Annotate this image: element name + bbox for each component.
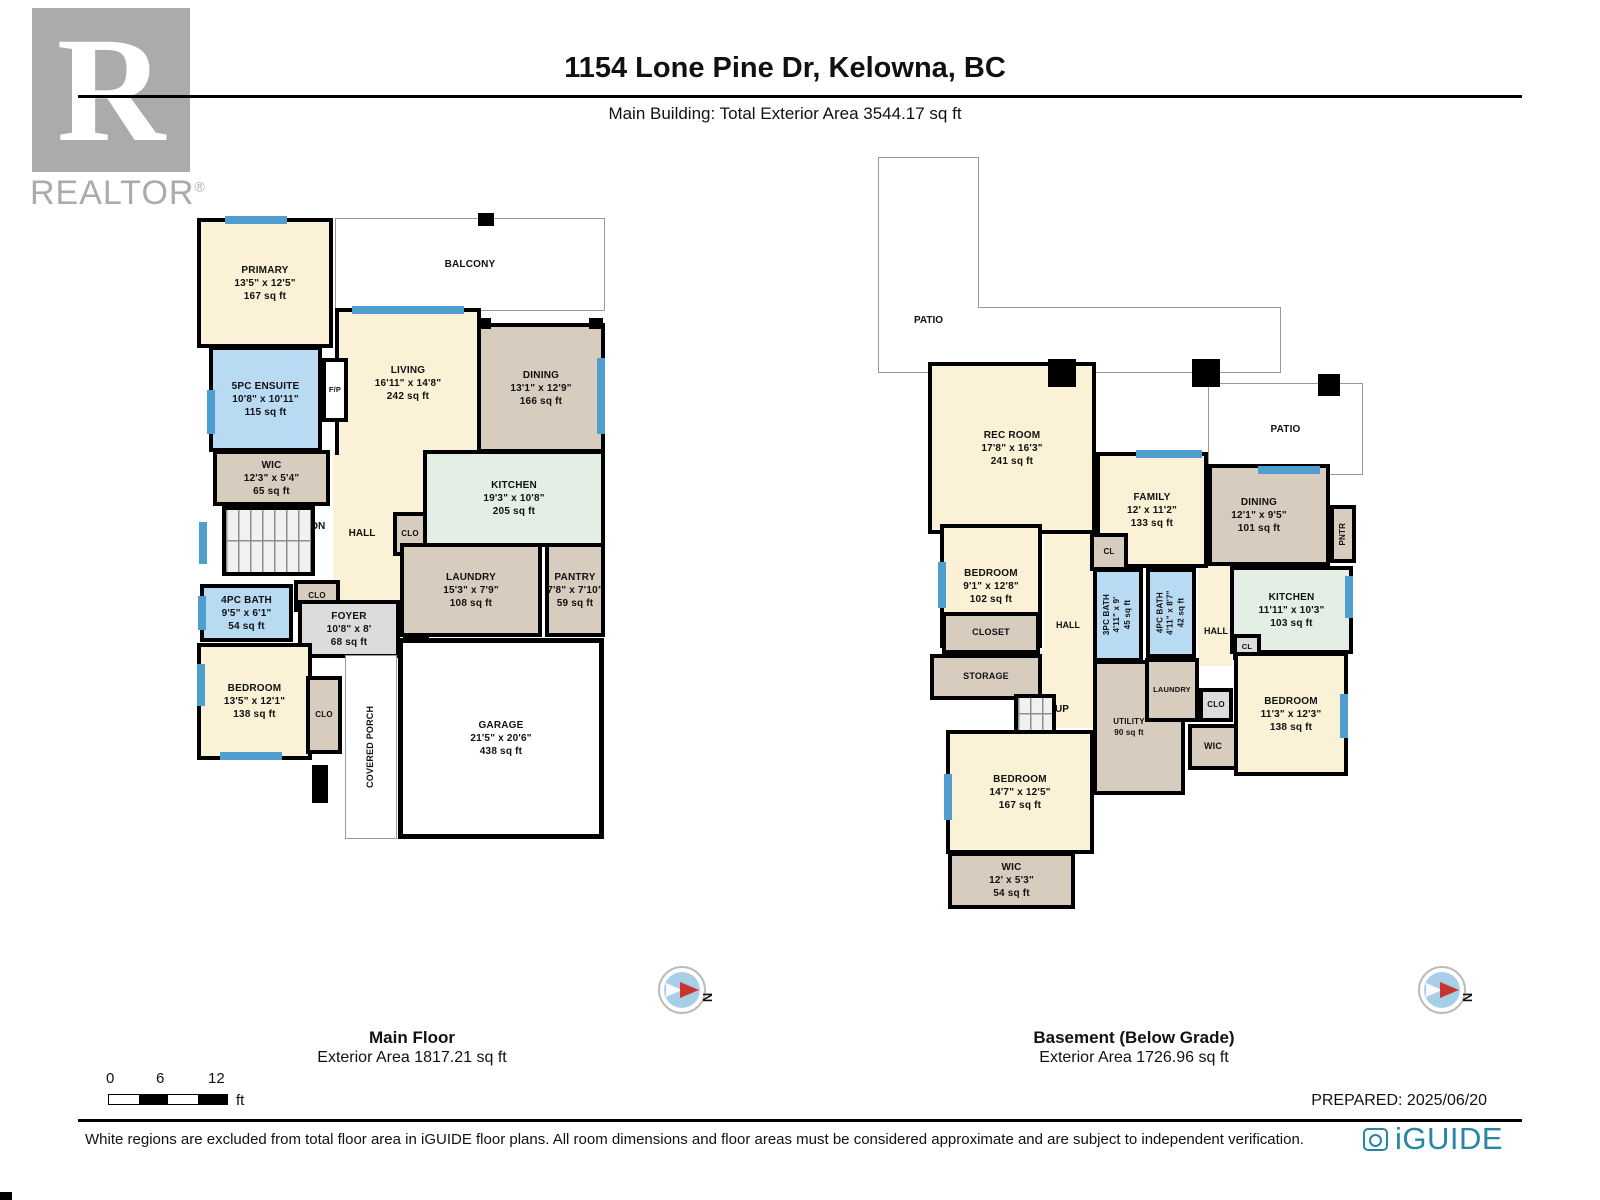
room-label: PANTRY7'8" x 7'10"59 sq ft	[547, 571, 603, 610]
scale-tick: 6	[156, 1070, 164, 1087]
iguide-camera-icon	[1363, 1128, 1388, 1151]
window-strip	[938, 562, 946, 608]
room-label: F/P	[329, 385, 341, 395]
room-label: LAUNDRY15'3" x 7'9"108 sq ft	[443, 571, 499, 610]
compass-needle-icon	[1440, 982, 1459, 998]
window-strip	[352, 306, 464, 314]
wall-post	[1192, 359, 1220, 387]
room-pantry: PANTRY7'8" x 7'10"59 sq ft	[545, 543, 605, 637]
window-strip	[198, 596, 206, 630]
footer-divider	[78, 1119, 1522, 1122]
room-label: DINING12'1" x 9'5"101 sq ft	[1231, 496, 1307, 535]
window-strip	[197, 664, 205, 706]
room-bedroom-3-basement: BEDROOM14'7" x 12'5"167 sq ft	[946, 730, 1094, 854]
room-label: BEDROOM14'7" x 12'5"167 sq ft	[989, 773, 1050, 812]
room-label: CLO	[1207, 700, 1225, 710]
floor-area: Exterior Area 1726.96 sq ft	[964, 1049, 1304, 1067]
room-label: FOYER10'8" x 8'68 sq ft	[327, 610, 372, 649]
floor-title: Main Floor	[242, 1028, 582, 1048]
room-label: WIC	[1204, 741, 1222, 753]
page-corner-mark	[0, 1192, 12, 1200]
page-title: 1154 Lone Pine Dr, Kelowna, BC	[0, 52, 1570, 85]
registered-mark: ®	[194, 179, 205, 195]
scale-tick: 12	[208, 1070, 225, 1087]
room-label: PATIO	[879, 315, 978, 326]
room-label: STORAGE	[963, 671, 1009, 683]
room-rec: REC ROOM17'8" x 16'3"241 sq ft	[928, 362, 1096, 534]
room-label: BEDROOM11'3" x 12'3"138 sq ft	[1261, 695, 1322, 734]
compass-needle-icon	[680, 982, 699, 998]
room-bath-main: 4PC BATH9'5" x 6'1"54 sq ft	[200, 584, 293, 642]
wall-post	[477, 318, 491, 329]
room-label: LIVING16'11" x 14'8"242 sq ft	[375, 364, 442, 403]
room-pantry-basement: PNTR	[1330, 505, 1356, 563]
room-label: CLO	[401, 529, 419, 539]
scale-bar: 0 6 12 ft	[104, 1070, 274, 1112]
window-strip	[207, 390, 215, 434]
compass-north-label: N	[1460, 993, 1475, 1002]
room-cl-1-basement: CL	[1090, 533, 1128, 571]
main-floor-caption: Main Floor Exterior Area 1817.21 sq ft	[242, 1028, 582, 1067]
wall-post	[1048, 359, 1076, 387]
scale-unit: ft	[236, 1092, 244, 1109]
floor-title: Basement (Below Grade)	[964, 1028, 1304, 1048]
window-strip	[225, 216, 287, 224]
window-strip	[944, 774, 952, 820]
basement-hall-right-area	[1198, 560, 1232, 666]
room-label: WIC12' x 5'3"54 sq ft	[989, 861, 1034, 900]
room-foyer: FOYER10'8" x 8'68 sq ft	[298, 600, 400, 658]
room-label: GARAGE21'5" x 20'6"438 sq ft	[470, 719, 531, 758]
room-label: PNTR	[1338, 523, 1348, 546]
room-label: CL	[1103, 547, 1114, 557]
room-label: DINING13'1" x 12'9"166 sq ft	[510, 369, 571, 408]
room-dining-basement: DINING12'1" x 9'5"101 sq ft	[1208, 464, 1330, 566]
room-bath-4pc: 4PC BATH4'11" x 8'7"42 sq ft	[1146, 568, 1196, 658]
room-label: REC ROOM17'8" x 16'3"241 sq ft	[981, 429, 1042, 468]
room-label: 4PC BATH9'5" x 6'1"54 sq ft	[221, 594, 272, 633]
room-label: CLO	[315, 710, 333, 720]
room-clo-basement: CLO	[1199, 688, 1233, 722]
realtor-logo: R	[32, 8, 190, 172]
compass-main-floor: N	[658, 966, 714, 1016]
basement-hall-left-area	[1044, 530, 1093, 666]
hall-label-main: HALL	[340, 528, 384, 539]
room-label: KITCHEN11'11" x 10'3"103 sq ft	[1259, 591, 1325, 630]
room-label: CL	[1242, 642, 1252, 652]
room-label: PRIMARY13'5" x 12'5"167 sq ft	[234, 264, 295, 303]
stairs-down	[222, 506, 315, 576]
room-kitchen-main: KITCHEN19'3" x 10'8"205 sq ft	[423, 450, 605, 547]
scale-bar-segments	[108, 1094, 228, 1105]
room-patio-2: PATIO	[1208, 383, 1363, 475]
window-strip	[1345, 576, 1353, 618]
room-covered-porch: COVERED PORCH	[345, 655, 397, 839]
room-label: FAMILY12' x 11'2"133 sq ft	[1127, 491, 1177, 530]
room-wic-mid-basement: WIC	[1188, 724, 1238, 770]
window-strip	[1258, 466, 1320, 474]
room-laundry-main: LAUNDRY15'3" x 7'9"108 sq ft	[400, 543, 542, 637]
floor-area: Exterior Area 1817.21 sq ft	[242, 1049, 582, 1067]
hall-label-basement-right: HALL	[1194, 626, 1238, 636]
header-divider	[78, 95, 1522, 98]
room-label: CLOSET	[972, 627, 1010, 639]
compass-basement: N	[1418, 966, 1474, 1016]
wall-post	[589, 318, 603, 329]
window-strip	[1136, 450, 1202, 458]
room-balcony: BALCONY	[335, 218, 605, 311]
window-strip	[220, 752, 282, 760]
stairs-up-label: UP	[1048, 704, 1076, 715]
room-wic-main: WIC12'3" x 5'4"65 sq ft	[213, 450, 330, 506]
iguide-wordmark: iGUIDE	[1395, 1121, 1503, 1157]
porch-pillar	[312, 765, 328, 803]
room-clo-bedroom: CLO	[306, 676, 342, 754]
window-strip	[1340, 694, 1348, 738]
realtor-wordmark: REALTOR®	[30, 174, 206, 213]
prepared-date: PREPARED: 2025/06/20	[1311, 1092, 1487, 1110]
room-label: COVERED PORCH	[365, 706, 377, 788]
room-closet-basement: CLOSET	[942, 612, 1040, 654]
room-bedroom-2-basement: BEDROOM11'3" x 12'3"138 sq ft	[1234, 652, 1348, 776]
room-garage: GARAGE21'5" x 20'6"438 sq ft	[398, 638, 604, 839]
page-subtitle: Main Building: Total Exterior Area 3544.…	[0, 104, 1570, 124]
room-bedroom-main: BEDROOM13'5" x 12'1"138 sq ft	[197, 643, 312, 760]
room-laundry-basement: LAUNDRY	[1145, 658, 1199, 722]
room-fireplace: F/P	[322, 358, 348, 422]
room-label: 4PC BATH4'11" x 8'7"42 sq ft	[1155, 591, 1186, 636]
room-label: BEDROOM9'1" x 12'8"102 sq ft	[963, 567, 1019, 606]
basement-caption: Basement (Below Grade) Exterior Area 172…	[964, 1028, 1304, 1067]
room-primary: PRIMARY13'5" x 12'5"167 sq ft	[197, 218, 333, 348]
room-label: 3PC BATH4'11" x 9'45 sq ft	[1102, 594, 1133, 635]
room-ensuite: 5PC ENSUITE10'8" x 10'11"115 sq ft	[209, 346, 322, 452]
room-patio-1: PATIO	[878, 157, 979, 373]
room-label: 5PC ENSUITE10'8" x 10'11"115 sq ft	[232, 380, 300, 419]
room-living: LIVING16'11" x 14'8"242 sq ft	[335, 308, 481, 455]
stairs-dn-label: DN	[305, 521, 331, 532]
wall-post	[1318, 374, 1340, 396]
room-label: PATIO	[1270, 423, 1300, 436]
window-strip	[199, 522, 207, 564]
room-label: BALCONY	[445, 258, 496, 271]
realtor-r-glyph: R	[57, 15, 165, 165]
disclaimer-text: White regions are excluded from total fl…	[85, 1131, 1304, 1148]
window-strip	[597, 358, 605, 434]
room-label: WIC12'3" x 5'4"65 sq ft	[244, 459, 300, 498]
room-bath-3pc: 3PC BATH4'11" x 9'45 sq ft	[1093, 568, 1143, 662]
iguide-logo: iGUIDE	[1363, 1121, 1503, 1157]
compass-north-label: N	[700, 993, 715, 1002]
room-dining-main: DINING13'1" x 12'9"166 sq ft	[477, 323, 605, 453]
hall-label-basement-left: HALL	[1046, 620, 1090, 630]
room-label: KITCHEN19'3" x 10'8"205 sq ft	[483, 479, 544, 518]
room-label: LAUNDRY	[1153, 685, 1191, 695]
wall-post	[478, 213, 494, 226]
scale-tick: 0	[106, 1070, 114, 1087]
room-wic-basement: WIC12' x 5'3"54 sq ft	[948, 852, 1075, 909]
room-label: BEDROOM13'5" x 12'1"138 sq ft	[224, 682, 285, 721]
